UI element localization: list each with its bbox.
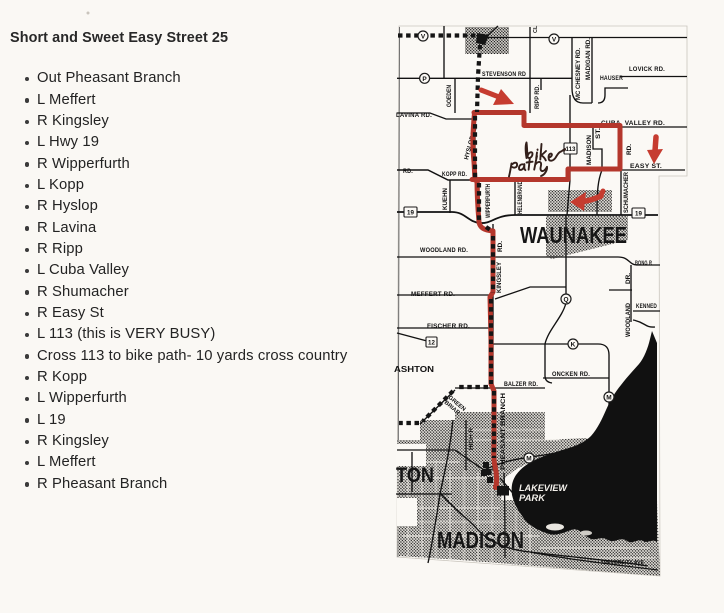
svg-text:RIPP RD.: RIPP RD. (534, 85, 541, 109)
svg-text:SCHUMACHER: SCHUMACHER (623, 172, 630, 213)
svg-text:RD.: RD. (403, 168, 413, 175)
svg-text:WOODLAND RD.: WOODLAND RD. (420, 247, 468, 254)
svg-text:Q: Q (563, 297, 568, 304)
svg-text:19: 19 (407, 210, 414, 217)
svg-text:STEVENSON RD: STEVENSON RD (482, 71, 526, 78)
svg-text:FISCHER RD.: FISCHER RD. (427, 323, 470, 330)
svg-text:WOODLAND: WOODLAND (625, 303, 632, 337)
svg-text:UNIVERSITY AVE: UNIVERSITY AVE (602, 560, 644, 566)
svg-text:TON: TON (396, 464, 434, 487)
svg-text:KINGSLEY: KINGSLEY (496, 261, 503, 293)
svg-text:WAUNAKEE: WAUNAKEE (520, 222, 627, 248)
svg-text:V: V (421, 34, 426, 41)
svg-text:12: 12 (428, 340, 435, 347)
svg-text:HELENBRAND: HELENBRAND (517, 181, 524, 214)
svg-text:V: V (552, 37, 557, 44)
svg-text:BONG R: BONG R (635, 260, 652, 267)
svg-text:KENNED: KENNED (636, 303, 657, 310)
svg-text:ASHTON: ASHTON (394, 364, 434, 374)
svg-text:MADIGAN RD.: MADIGAN RD. (585, 38, 592, 80)
svg-text:PARK: PARK (519, 493, 546, 504)
svg-text:P: P (422, 76, 427, 83)
svg-text:K: K (571, 342, 576, 349)
svg-text:ONCKEN RD.: ONCKEN RD. (552, 371, 590, 378)
svg-text:RD.: RD. (626, 144, 633, 155)
svg-text:LOVICK RD.: LOVICK RD. (629, 66, 665, 73)
svg-text:ST.: ST. (595, 128, 602, 139)
svg-text:EASY ST.: EASY ST. (630, 163, 662, 170)
svg-text:MADISON: MADISON (586, 135, 593, 165)
svg-text:MC CHESNEY RD.: MC CHESNEY RD. (575, 48, 582, 100)
svg-text:DR.: DR. (625, 273, 632, 284)
svg-text:HAUSER: HAUSER (600, 75, 623, 82)
svg-text:WIPPERFURTH: WIPPERFURTH (485, 184, 492, 218)
svg-text:KUEHN: KUEHN (442, 188, 449, 210)
svg-text:LAVINA RD.: LAVINA RD. (396, 112, 432, 119)
svg-text:113: 113 (566, 146, 577, 153)
svg-text:CL: CL (533, 25, 539, 33)
svg-text:GOEDEN: GOEDEN (446, 85, 453, 107)
svg-text:MEFFERT RD.: MEFFERT RD. (411, 291, 455, 298)
svg-text:MADISON: MADISON (437, 527, 524, 553)
svg-text:KOPP RD.: KOPP RD. (442, 171, 467, 178)
svg-text:19: 19 (635, 211, 642, 218)
svg-text:M: M (606, 395, 611, 402)
svg-text:RD.: RD. (497, 241, 504, 252)
svg-text:BALZER RD.: BALZER RD. (504, 381, 538, 388)
svg-text:PHEASANT BRANCH: PHEASANT BRANCH (500, 392, 507, 470)
svg-text:M: M (526, 456, 531, 463)
svg-text:HIGH R: HIGH R (468, 428, 475, 450)
